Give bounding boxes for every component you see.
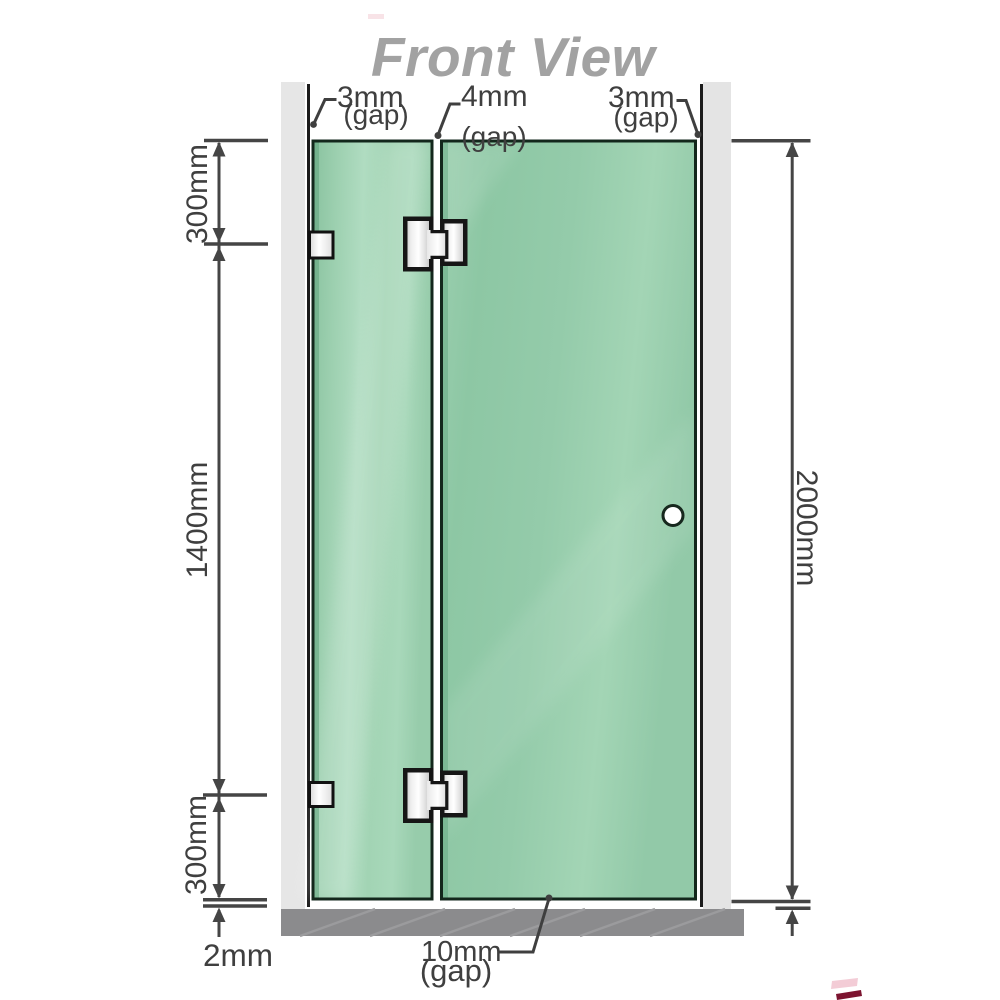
svg-text:(gap): (gap)	[461, 121, 526, 152]
svg-text:300mm: 300mm	[180, 795, 213, 895]
svg-text:(gap): (gap)	[343, 99, 408, 130]
svg-text:2000mm: 2000mm	[790, 470, 823, 587]
svg-text:Front View: Front View	[371, 26, 658, 88]
svg-text:4mm: 4mm	[461, 80, 528, 113]
svg-text:1400mm: 1400mm	[181, 462, 214, 579]
svg-text:(gap): (gap)	[420, 953, 492, 988]
svg-text:300mm: 300mm	[181, 144, 214, 244]
svg-text:2mm: 2mm	[203, 937, 273, 973]
svg-text:(gap): (gap)	[613, 101, 678, 132]
